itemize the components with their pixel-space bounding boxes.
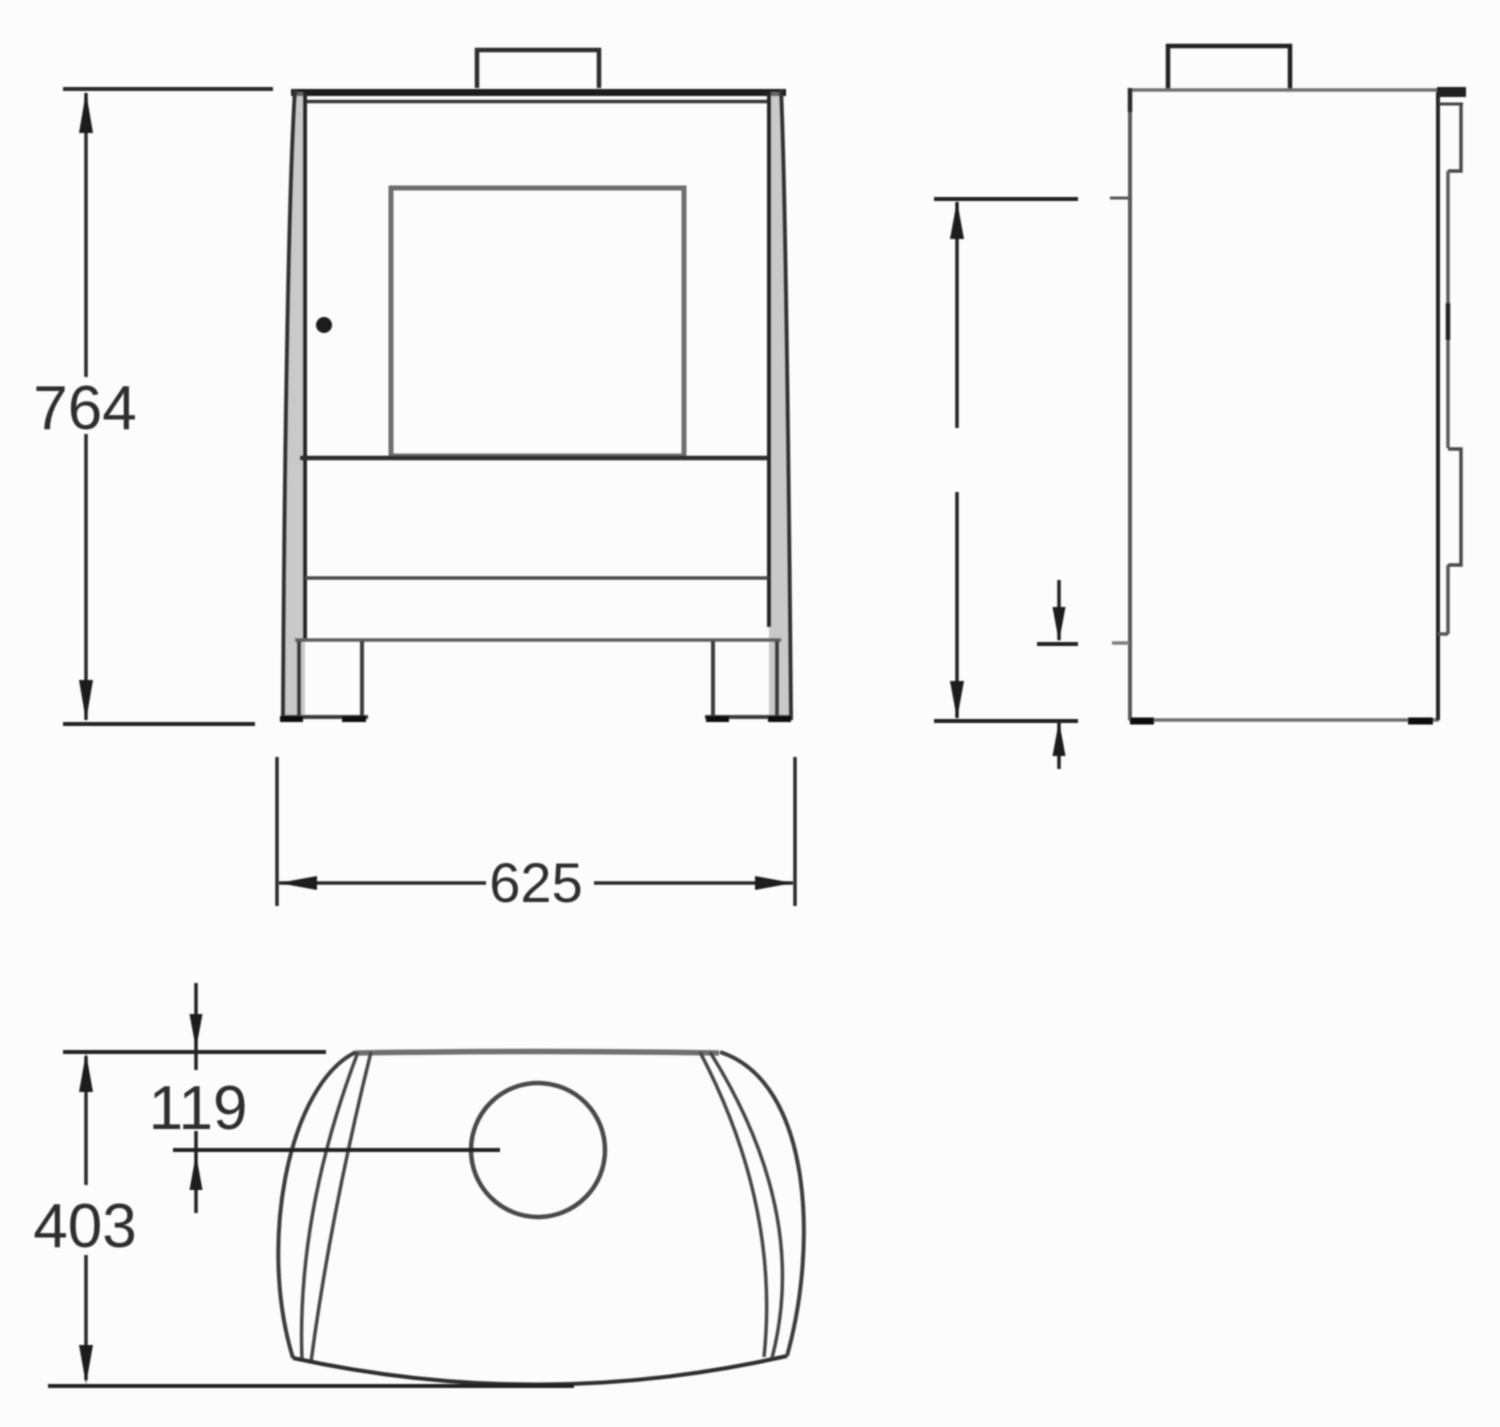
svg-text:119: 119 (149, 1074, 248, 1143)
svg-text:625: 625 (489, 851, 582, 914)
svg-text:764: 764 (33, 374, 136, 443)
svg-text:403: 403 (33, 1192, 136, 1261)
